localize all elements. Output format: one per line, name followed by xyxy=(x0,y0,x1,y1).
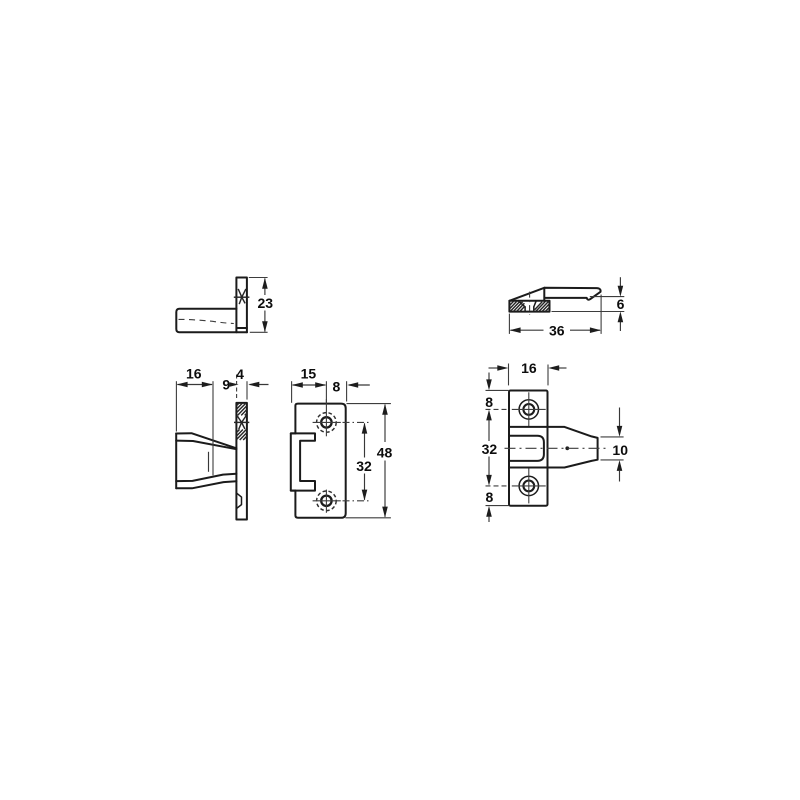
svg-text:8: 8 xyxy=(485,394,493,410)
svg-text:16: 16 xyxy=(186,366,202,382)
svg-text:23: 23 xyxy=(258,295,274,311)
svg-text:32: 32 xyxy=(356,458,372,474)
svg-text:8: 8 xyxy=(333,378,341,394)
svg-text:15: 15 xyxy=(301,366,317,382)
svg-text:8: 8 xyxy=(486,489,494,505)
svg-text:16: 16 xyxy=(521,360,537,376)
svg-text:10: 10 xyxy=(612,442,628,458)
svg-text:36: 36 xyxy=(549,322,565,338)
svg-text:6: 6 xyxy=(617,296,625,312)
svg-text:9: 9 xyxy=(222,376,230,392)
svg-text:4: 4 xyxy=(236,366,244,382)
svg-text:48: 48 xyxy=(377,445,393,461)
svg-text:32: 32 xyxy=(482,441,498,457)
